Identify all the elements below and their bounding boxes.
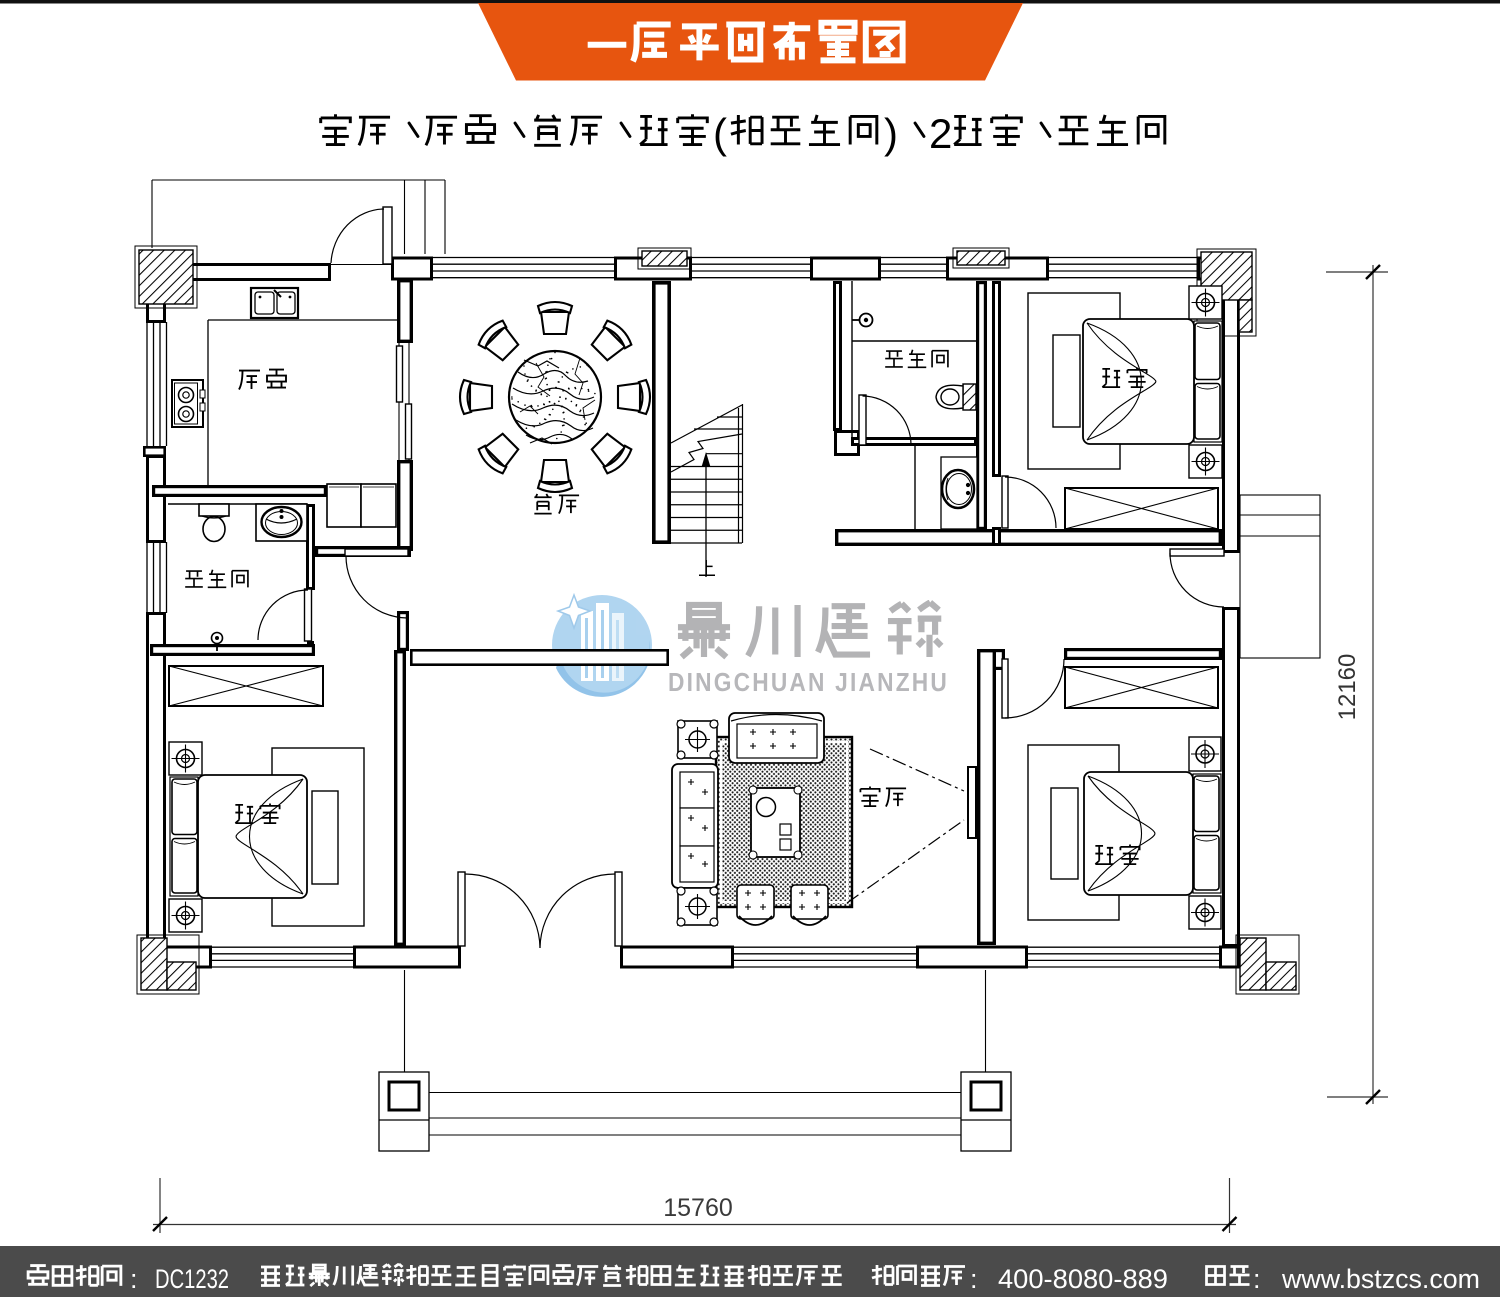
svg-text:(: ( — [713, 110, 727, 157]
svg-text:): ) — [884, 110, 898, 157]
svg-text:2: 2 — [929, 110, 952, 157]
svg-text::: : — [970, 1264, 978, 1294]
svg-text::: : — [130, 1264, 138, 1294]
svg-text:www.bstzcs.com: www.bstzcs.com — [1281, 1264, 1480, 1294]
svg-text:DINGCHUAN JIANZHU: DINGCHUAN JIANZHU — [668, 667, 949, 697]
svg-text::: : — [1253, 1264, 1261, 1294]
svg-text:400-8080-889: 400-8080-889 — [998, 1264, 1168, 1294]
svg-text:12160: 12160 — [1334, 654, 1361, 721]
svg-text:15760: 15760 — [663, 1194, 733, 1222]
svg-text:DC1232: DC1232 — [155, 1264, 229, 1294]
